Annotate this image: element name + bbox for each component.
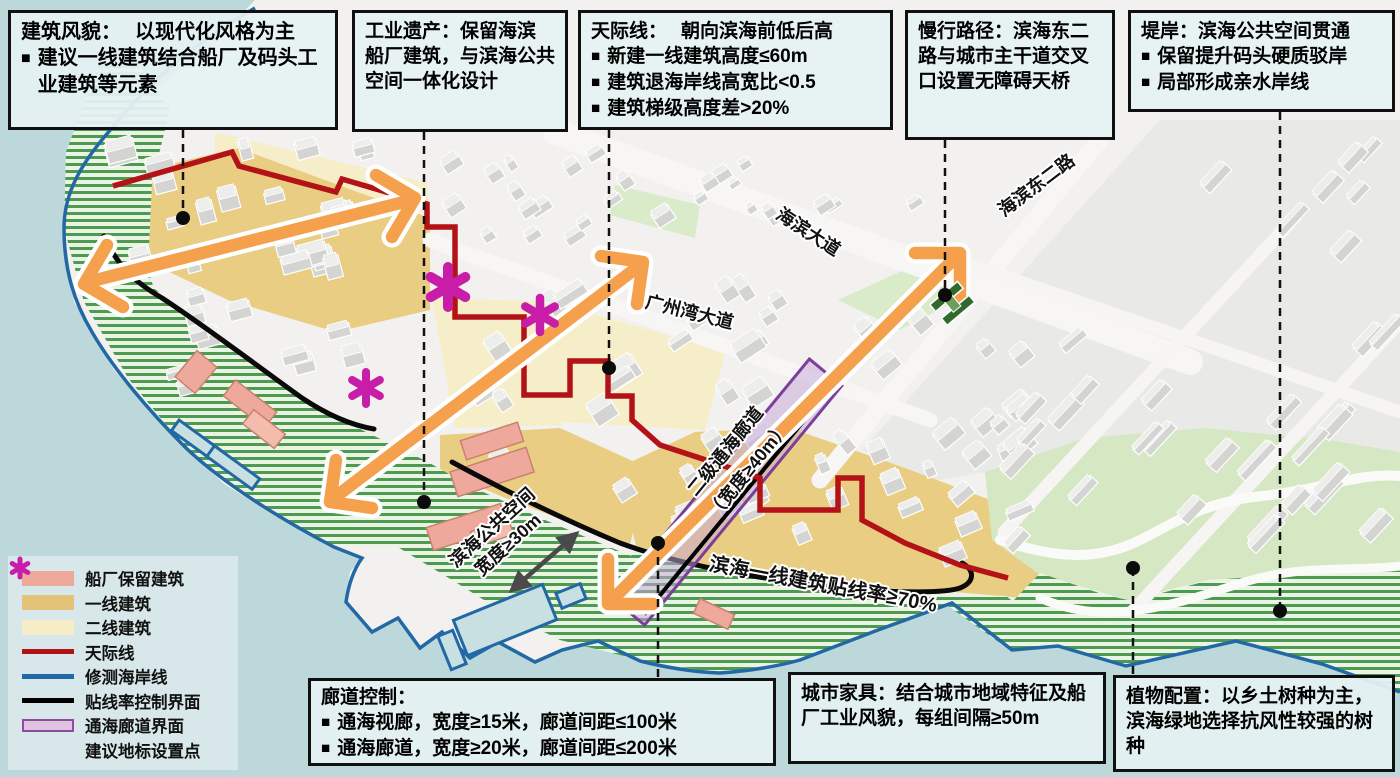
bullet-icon: ■ xyxy=(321,710,330,736)
interface-swatch xyxy=(22,698,74,703)
first-line-swatch xyxy=(22,595,74,610)
callout-title: 建筑风貌： xyxy=(21,21,121,43)
legend-item-interface: 贴线率控制界面 xyxy=(22,689,232,713)
legend-item-second-line: 二线建筑 xyxy=(22,615,232,639)
callout-slow-path: 慢行路径：滨海东二路与城市主干道交叉口设置无障碍天桥 xyxy=(905,10,1115,140)
legend-item-corridor: 通海廊道界面 xyxy=(22,713,232,737)
legend-item-shipyard: 船厂保留建筑 xyxy=(22,566,232,590)
bullet-icon: ■ xyxy=(591,70,600,96)
bullet-icon: ■ xyxy=(1141,70,1150,96)
callout-title: 天际线： xyxy=(591,21,667,42)
bullet-icon: ■ xyxy=(21,45,31,72)
legend-label: 一线建筑 xyxy=(85,591,151,615)
landmark-asterisk-icon xyxy=(22,739,74,761)
callout-title: 慢行路径： xyxy=(918,21,1013,42)
skyline-swatch xyxy=(22,649,74,654)
corridor-swatch xyxy=(22,719,74,732)
bullet-icon: ■ xyxy=(1141,44,1150,70)
callout-title: 城市家具： xyxy=(801,683,896,704)
legend-label: 天际线 xyxy=(85,640,135,664)
legend-item-first-line: 一线建筑 xyxy=(22,591,232,615)
legend-label: 修测海岸线 xyxy=(85,664,168,688)
bullet-icon: ■ xyxy=(321,736,330,762)
legend-label: 贴线率控制界面 xyxy=(85,689,201,713)
legend-item-skyline: 天际线 xyxy=(22,640,232,664)
callout-bullet: 建筑梯级高度差>20% xyxy=(607,96,789,121)
callout-title: 工业遗产： xyxy=(365,21,460,42)
legend-label: 通海廊道界面 xyxy=(85,713,184,737)
bullet-icon: ■ xyxy=(591,96,600,122)
callout-bullet: 建筑退海岸线高宽比<0.5 xyxy=(607,70,816,95)
bullet-icon: ■ xyxy=(591,44,600,70)
coastline-swatch xyxy=(22,674,74,679)
callout-bullet: 新建一线建筑高度≤60m xyxy=(607,44,807,69)
callout-title: 植物配置： xyxy=(1126,686,1221,707)
legend-label: 建议地标设置点 xyxy=(85,738,201,762)
callout-building-style: 建筑风貌：以现代化风格为主 ■建议一线建筑结合船厂及码头工业建筑等元素 xyxy=(8,10,338,130)
callout-bullet: 通海廊道，宽度≥20米，廊道间距≤200米 xyxy=(337,736,677,761)
planning-diagram: 海滨大道 广州湾大道 海滨东二路 二级通海廊道 （宽度≥40m） 滨海公共空间 … xyxy=(0,0,1400,777)
callout-title: 廊道控制： xyxy=(321,687,416,708)
callout-corridor-control: 廊道控制： ■通海视廊，宽度≥15米，廊道间距≤100米 ■通海廊道，宽度≥20… xyxy=(308,678,776,766)
callout-bullet: 建议一线建筑结合船厂及码头工业建筑等元素 xyxy=(38,45,325,98)
callout-subtitle: 滨海公共空间贯通 xyxy=(1198,21,1350,42)
legend-label: 船厂保留建筑 xyxy=(85,566,184,590)
callout-urban-furniture: 城市家具：结合城市地域特征及船厂工业风貌，每组间隔≥50m xyxy=(788,672,1106,764)
callout-industrial-heritage: 工业遗产：保留海滨船厂建筑，与滨海公共空间一体化设计 xyxy=(352,10,568,132)
callout-bullet: 通海视廊，宽度≥15米，廊道间距≤100米 xyxy=(337,710,677,735)
callout-bullet: 保留提升码头硬质驳岸 xyxy=(1157,44,1347,69)
legend-item-landmark: 建议地标设置点 xyxy=(22,738,232,762)
map-legend: 船厂保留建筑 一线建筑 二线建筑 天际线 修测海岸线 贴线率控制界面 通海廊道界… xyxy=(8,556,238,770)
callout-embankment: 堤岸：滨海公共空间贯通 ■保留提升码头硬质驳岸 ■局部形成亲水岸线 xyxy=(1128,10,1395,112)
callout-subtitle: 以现代化风格为主 xyxy=(135,21,295,43)
legend-label: 二线建筑 xyxy=(85,615,151,639)
legend-item-coastline: 修测海岸线 xyxy=(22,664,232,688)
callout-planting: 植物配置：以乡土树种为主，滨海绿地选择抗风性较强的树种 xyxy=(1113,675,1395,772)
callout-bullet: 局部形成亲水岸线 xyxy=(1157,70,1309,95)
callout-title: 堤岸： xyxy=(1141,21,1198,42)
callout-subtitle: 朝向滨海前低后高 xyxy=(681,21,833,42)
second-line-swatch xyxy=(22,620,74,635)
callout-skyline: 天际线：朝向滨海前低后高 ■新建一线建筑高度≤60m ■建筑退海岸线高宽比<0.… xyxy=(578,10,893,130)
